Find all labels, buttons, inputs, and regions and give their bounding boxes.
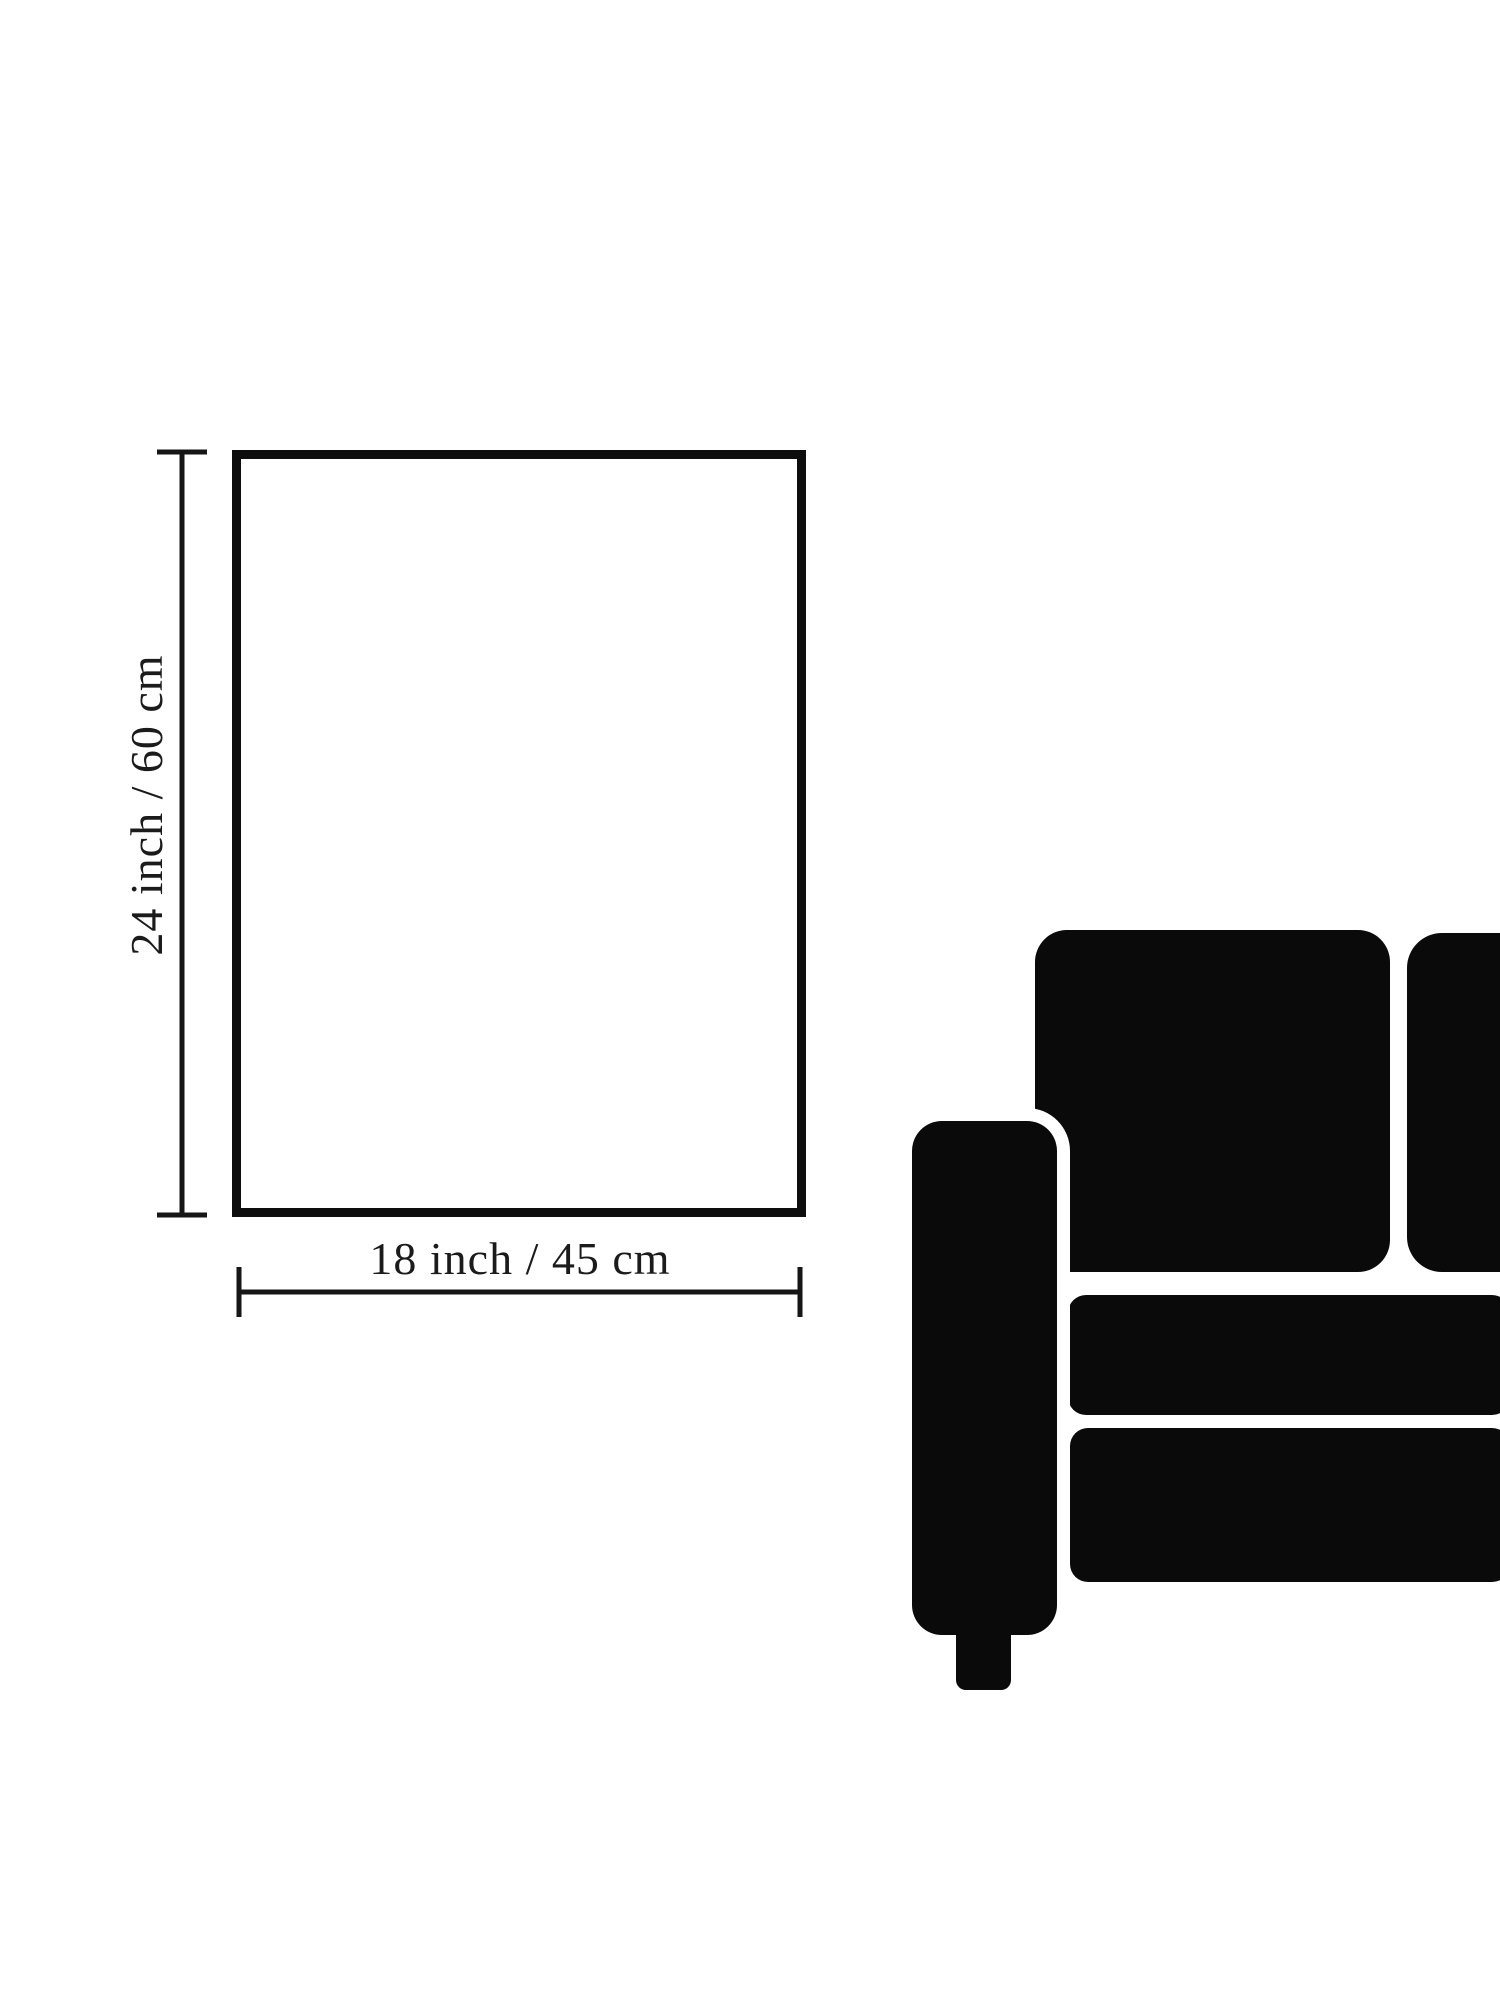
size-diagram-canvas: 24 inch / 60 cm 18 inch / 45 cm — [0, 0, 1500, 2000]
sofa-seat-base — [1070, 1428, 1500, 1582]
width-label: 18 inch / 45 cm — [369, 1236, 670, 1282]
sofa-seat-cushion — [1068, 1295, 1500, 1415]
sofa-leg — [956, 1598, 1011, 1690]
sofa-back-cushion-left — [1035, 930, 1390, 1272]
frame-outline — [237, 455, 802, 1213]
size-diagram-graphic — [0, 0, 1500, 2000]
height-label: 24 inch / 60 cm — [124, 654, 170, 955]
sofa-icon — [899, 930, 1500, 1690]
sofa-back-cushion-right — [1407, 933, 1500, 1272]
sofa-armrest — [912, 1121, 1057, 1635]
